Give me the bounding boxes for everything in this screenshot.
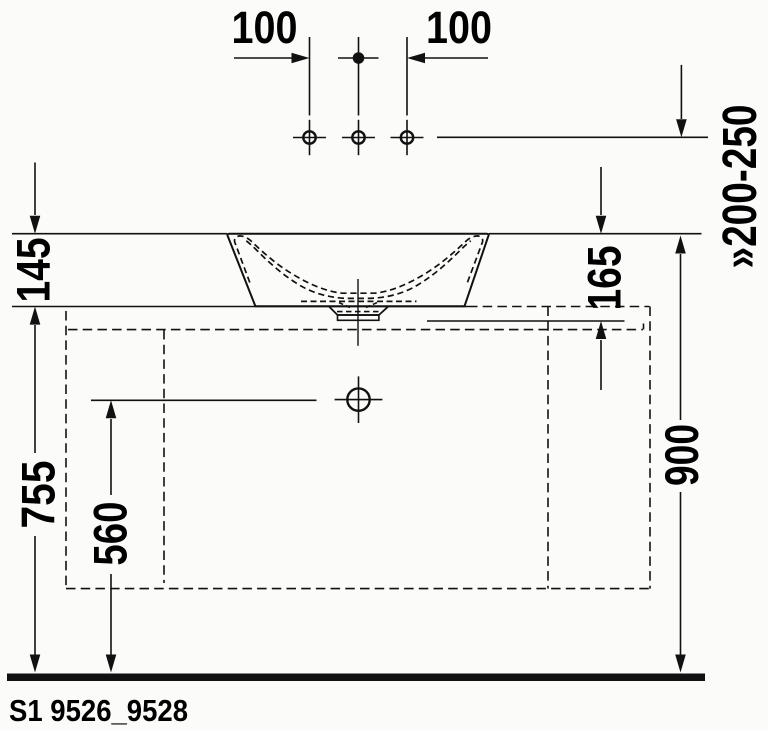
svg-text:560: 560 xyxy=(84,502,137,566)
svg-text:S1 9526_9528: S1 9526_9528 xyxy=(9,693,188,728)
svg-text:755: 755 xyxy=(12,461,65,529)
svg-text:165: 165 xyxy=(578,246,631,311)
svg-text:»200-250: »200-250 xyxy=(714,105,767,269)
svg-text:100: 100 xyxy=(232,2,298,53)
svg-text:100: 100 xyxy=(426,2,492,53)
svg-text:145: 145 xyxy=(7,238,60,303)
svg-text:900: 900 xyxy=(655,424,708,486)
